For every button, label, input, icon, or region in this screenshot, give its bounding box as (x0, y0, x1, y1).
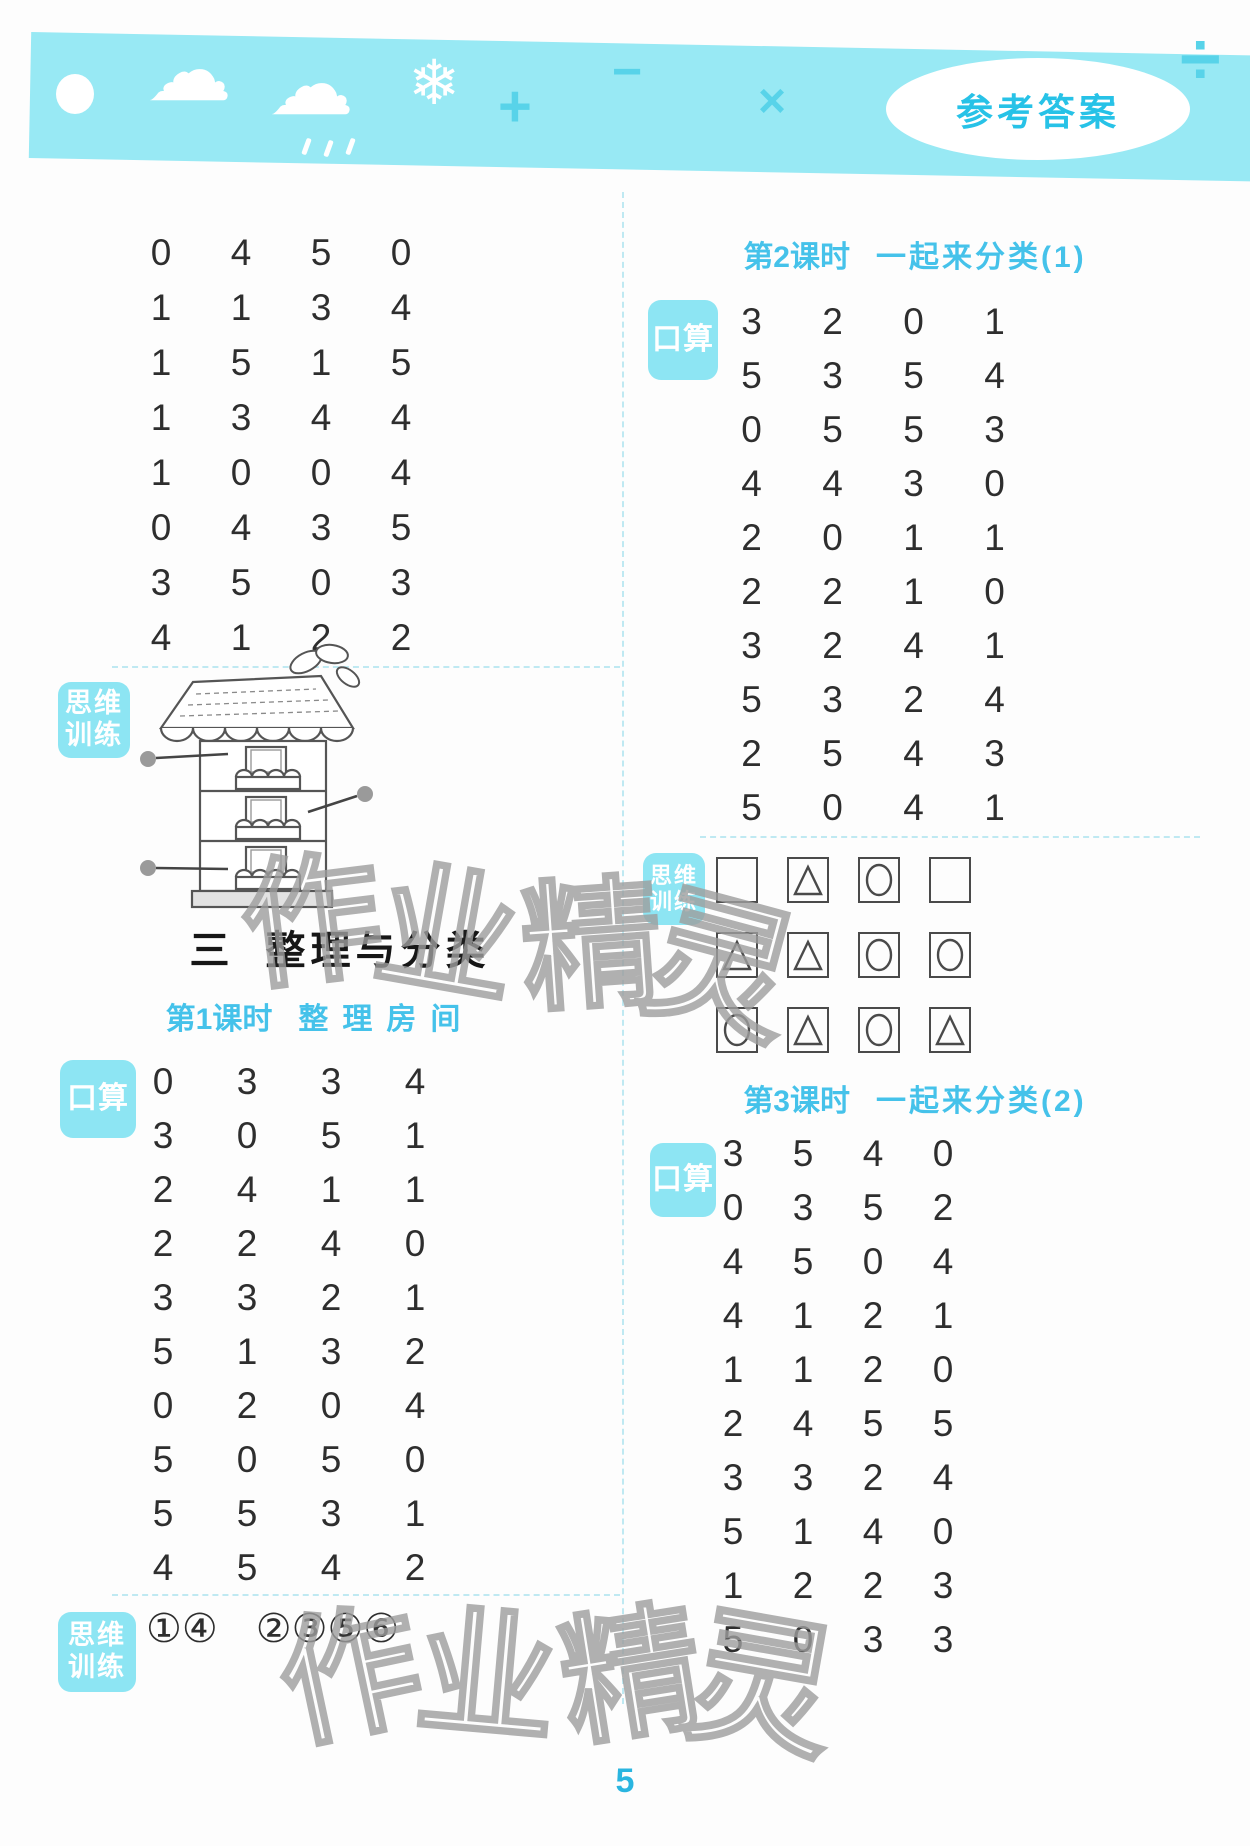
answer-cell: 4 (792, 457, 873, 511)
answer-cell: 4 (361, 445, 441, 500)
stamp-text: 思维 (68, 1620, 126, 1652)
raindrop-icon (345, 138, 356, 156)
oral-calc-stamp: 口算 (648, 300, 718, 380)
answer-cell: 4 (201, 225, 281, 280)
answer-cell: 1 (121, 445, 201, 500)
shape-square-icon (929, 857, 971, 903)
answer-cell: 4 (838, 1127, 908, 1181)
answer-cell: 0 (373, 1433, 457, 1487)
answer-cell: 3 (281, 500, 361, 555)
answer-grid-lesson1: 0334305124112240332151320204505055314542 (121, 1055, 457, 1595)
answer-cell: 0 (838, 1235, 908, 1289)
answer-cell: 4 (281, 390, 361, 445)
answer-cell: 1 (373, 1271, 457, 1325)
answer-cell: 5 (711, 349, 792, 403)
answer-cell: 1 (954, 295, 1035, 349)
answer-row: 1344 (121, 390, 441, 445)
answer-cell: 2 (205, 1217, 289, 1271)
answer-cell: 4 (954, 349, 1035, 403)
answer-cell: 5 (711, 781, 792, 835)
answer-cell: 3 (908, 1613, 978, 1667)
answer-cell: 1 (768, 1343, 838, 1397)
answer-cell: 0 (121, 225, 201, 280)
answer-row: 3324 (698, 1451, 978, 1505)
answer-cell: 2 (838, 1289, 908, 1343)
answer-row: 5324 (711, 673, 1035, 727)
plus-icon: + (498, 78, 532, 136)
answer-cell: 2 (768, 1559, 838, 1613)
answer-cell: 0 (908, 1343, 978, 1397)
answer-cell: 5 (121, 1487, 205, 1541)
answer-cell: 1 (201, 280, 281, 335)
answer-cell: 4 (873, 619, 954, 673)
answer-cell: 0 (281, 445, 361, 500)
cloud-icon: ☁ (146, 28, 232, 114)
answer-cell: 4 (908, 1451, 978, 1505)
answer-cell: 5 (281, 225, 361, 280)
answer-cell: 3 (792, 349, 873, 403)
answer-cell: 4 (873, 781, 954, 835)
stamp-text: 训练 (68, 1652, 126, 1684)
answer-cell: 0 (711, 403, 792, 457)
answer-cell: 3 (792, 673, 873, 727)
answer-row: 5140 (698, 1505, 978, 1559)
answer-cell: 0 (908, 1505, 978, 1559)
header-layer: ☁ ☁ ❄ + − × ÷ 参考答案 (0, 0, 1250, 220)
house-illustration (108, 578, 428, 923)
answer-cell: 4 (838, 1505, 908, 1559)
answer-cell: 2 (373, 1541, 457, 1595)
answer-cell: 5 (908, 1397, 978, 1451)
answer-row: 5033 (698, 1613, 978, 1667)
answer-cell: 4 (289, 1541, 373, 1595)
lesson3-prefix: 第3课时 (743, 1076, 850, 1120)
answer-grid-lesson2: 3201535405534430201122103241532425435041 (711, 295, 1035, 835)
answer-row: 4542 (121, 1541, 457, 1595)
answer-cell: 5 (289, 1433, 373, 1487)
answer-cell: 1 (698, 1559, 768, 1613)
answer-cell: 1 (281, 335, 361, 390)
answer-cell: 1 (289, 1163, 373, 1217)
answer-row: 2411 (121, 1163, 457, 1217)
answer-row: 1223 (698, 1559, 978, 1613)
lesson2-prefix: 第2课时 (743, 232, 850, 276)
answer-cell: 3 (768, 1181, 838, 1235)
answer-cell: 2 (838, 1343, 908, 1397)
shape-circle-icon (858, 932, 900, 978)
answer-row: 4504 (698, 1235, 978, 1289)
answer-cell: 1 (768, 1505, 838, 1559)
shape-circle-icon (929, 932, 971, 978)
answers-badge: 参考答案 (886, 58, 1190, 160)
answer-cell: 3 (121, 1271, 205, 1325)
lesson2-title: 第2课时 一起来分类(1) (680, 232, 1150, 276)
stamp-text: 思维 (650, 863, 698, 889)
section-name: 整理与分类 (266, 918, 491, 976)
shape-circle-icon (858, 1007, 900, 1053)
shape-classification-grid (716, 857, 971, 1053)
answer-cell: 2 (711, 727, 792, 781)
answer-row: 2011 (711, 511, 1035, 565)
answer-cell: 0 (205, 1109, 289, 1163)
answer-row: 3540 (698, 1127, 978, 1181)
answer-row: 3241 (711, 619, 1035, 673)
answer-cell: 5 (121, 1433, 205, 1487)
answer-cell: 3 (711, 295, 792, 349)
answer-row: 5354 (711, 349, 1035, 403)
shape-circle-icon (716, 1007, 758, 1053)
answer-cell: 1 (373, 1109, 457, 1163)
answer-cell: 4 (373, 1055, 457, 1109)
answer-cell: 3 (768, 1451, 838, 1505)
circled-answer-group: ①④ (146, 1606, 218, 1652)
answer-grid-lesson3: 3540035245044121112024553324514012235033 (698, 1127, 978, 1667)
answer-cell: 4 (205, 1163, 289, 1217)
multiply-icon: × (758, 78, 786, 126)
answer-cell: 2 (792, 565, 873, 619)
answer-cell: 2 (373, 1325, 457, 1379)
answer-row: 5041 (711, 781, 1035, 835)
answer-cell: 2 (838, 1559, 908, 1613)
lesson1-title: 第1课时 整理房间 (85, 994, 555, 1038)
answer-cell: 0 (768, 1613, 838, 1667)
answer-cell: 5 (698, 1613, 768, 1667)
answer-row: 5132 (121, 1325, 457, 1379)
shape-triangle-icon (787, 857, 829, 903)
minus-icon: − (612, 46, 642, 98)
answer-cell: 5 (768, 1235, 838, 1289)
lesson2-name: 一起来分类(1) (876, 232, 1087, 276)
answer-cell: 0 (698, 1181, 768, 1235)
answer-cell: 4 (289, 1217, 373, 1271)
shape-triangle-icon (787, 932, 829, 978)
divide-icon: ÷ (1180, 22, 1221, 96)
answer-cell: 5 (792, 727, 873, 781)
lesson1-name: 整理房间 (298, 994, 474, 1038)
rain-cloud-icon: ☁ (268, 42, 354, 128)
answer-row: 0450 (121, 225, 441, 280)
answer-cell: 0 (873, 295, 954, 349)
shape-square-icon (716, 857, 758, 903)
answer-cell: 2 (698, 1397, 768, 1451)
stamp-text: 口算 (652, 322, 714, 357)
answer-cell: 1 (873, 511, 954, 565)
answer-cell: 0 (121, 500, 201, 555)
answer-cell: 4 (361, 280, 441, 335)
answer-cell: 5 (873, 349, 954, 403)
answer-row: 2240 (121, 1217, 457, 1271)
thinking-answer-row: ①④ ②③⑤⑥ (146, 1606, 399, 1652)
lesson1-prefix: 第1课时 (166, 994, 273, 1038)
answer-cell: 5 (873, 403, 954, 457)
shape-triangle-icon (716, 932, 758, 978)
answer-cell: 3 (121, 1109, 205, 1163)
answer-row: 3201 (711, 295, 1035, 349)
answer-cell: 3 (838, 1613, 908, 1667)
answer-cell: 5 (768, 1127, 838, 1181)
answer-cell: 4 (698, 1235, 768, 1289)
answer-cell: 5 (205, 1541, 289, 1595)
answer-cell: 5 (698, 1505, 768, 1559)
answer-cell: 2 (711, 511, 792, 565)
answer-cell: 5 (711, 673, 792, 727)
answer-cell: 3 (205, 1271, 289, 1325)
answer-cell: 5 (289, 1109, 373, 1163)
answer-row: 0435 (121, 500, 441, 555)
raindrop-icon (301, 138, 312, 156)
answer-cell: 3 (908, 1559, 978, 1613)
separator-line (112, 1594, 620, 1596)
answer-cell: 5 (838, 1397, 908, 1451)
answer-row: 1134 (121, 280, 441, 335)
answer-cell: 4 (121, 1541, 205, 1595)
column-divider (622, 192, 624, 1704)
answer-cell: 0 (121, 1379, 205, 1433)
answer-row: 0553 (711, 403, 1035, 457)
page-number: 5 (575, 1762, 675, 1801)
answer-cell: 4 (373, 1379, 457, 1433)
answer-cell: 3 (698, 1451, 768, 1505)
answer-row: 1120 (698, 1343, 978, 1397)
raindrop-icon (323, 140, 334, 158)
stamp-text: 训练 (650, 889, 698, 915)
answer-row: 0352 (698, 1181, 978, 1235)
answer-row: 1515 (121, 335, 441, 390)
section-title: 三 整理与分类 (140, 918, 540, 976)
answer-cell: 4 (873, 727, 954, 781)
answer-cell: 1 (121, 390, 201, 445)
answer-cell: 1 (954, 619, 1035, 673)
answer-row: 3051 (121, 1109, 457, 1163)
answer-cell: 1 (121, 280, 201, 335)
snowflake-icon: ❄ (408, 52, 460, 114)
answer-cell: 3 (954, 727, 1035, 781)
answer-cell: 2 (792, 619, 873, 673)
answer-cell: 0 (792, 511, 873, 565)
answer-cell: 3 (205, 1055, 289, 1109)
shape-triangle-icon (929, 1007, 971, 1053)
answer-cell: 4 (711, 457, 792, 511)
answer-cell: 2 (121, 1217, 205, 1271)
answer-cell: 1 (954, 781, 1035, 835)
answer-cell: 2 (873, 673, 954, 727)
answer-cell: 3 (954, 403, 1035, 457)
answer-cell: 0 (954, 565, 1035, 619)
answer-cell: 0 (361, 225, 441, 280)
answer-cell: 0 (908, 1127, 978, 1181)
lesson3-title: 第3课时 一起来分类(2) (680, 1076, 1150, 1120)
shape-triangle-icon (787, 1007, 829, 1053)
answer-cell: 1 (121, 335, 201, 390)
answer-cell: 1 (768, 1289, 838, 1343)
answer-cell: 0 (121, 1055, 205, 1109)
answer-cell: 4 (201, 500, 281, 555)
answer-cell: 3 (289, 1325, 373, 1379)
answer-cell: 1 (373, 1163, 457, 1217)
answer-cell: 0 (373, 1217, 457, 1271)
answer-row: 3321 (121, 1271, 457, 1325)
answer-cell: 1 (908, 1289, 978, 1343)
answer-cell: 2 (792, 295, 873, 349)
answer-row: 4121 (698, 1289, 978, 1343)
answer-cell: 5 (361, 335, 441, 390)
answer-cell: 5 (121, 1325, 205, 1379)
answer-cell: 0 (201, 445, 281, 500)
lesson3-name: 一起来分类(2) (876, 1076, 1087, 1120)
answer-cell: 2 (289, 1271, 373, 1325)
answer-cell: 4 (698, 1289, 768, 1343)
answers-badge-label: 参考答案 (956, 82, 1120, 136)
answer-cell: 5 (838, 1181, 908, 1235)
answer-cell: 0 (289, 1379, 373, 1433)
thinking-training-stamp: 思维 训练 (643, 853, 705, 925)
answer-cell: 4 (768, 1397, 838, 1451)
stamp-text: 口算 (67, 1081, 129, 1116)
answer-row: 4430 (711, 457, 1035, 511)
answer-row: 5531 (121, 1487, 457, 1541)
answer-cell: 3 (873, 457, 954, 511)
answer-cell: 2 (838, 1451, 908, 1505)
answer-cell: 5 (201, 335, 281, 390)
answer-row: 5050 (121, 1433, 457, 1487)
answer-cell: 2 (121, 1163, 205, 1217)
thinking-training-stamp: 思维 训练 (58, 1612, 136, 1692)
workbook-page: ☁ ☁ ❄ + − × ÷ 参考答案 045011341515134410040… (0, 0, 1250, 1846)
separator-line (700, 836, 1200, 838)
answer-cell: 3 (289, 1487, 373, 1541)
answer-cell: 0 (954, 457, 1035, 511)
answer-cell: 1 (873, 565, 954, 619)
answer-cell: 4 (954, 673, 1035, 727)
answer-cell: 1 (954, 511, 1035, 565)
answer-cell: 1 (205, 1325, 289, 1379)
answer-cell: 1 (373, 1487, 457, 1541)
answer-cell: 3 (289, 1055, 373, 1109)
answer-row: 0204 (121, 1379, 457, 1433)
answer-row: 0334 (121, 1055, 457, 1109)
answer-cell: 3 (281, 280, 361, 335)
answer-cell: 2 (711, 565, 792, 619)
answer-row: 2543 (711, 727, 1035, 781)
watermark-char: 精 (545, 1554, 715, 1775)
shape-circle-icon (858, 857, 900, 903)
answer-cell: 5 (361, 500, 441, 555)
answer-cell: 5 (792, 403, 873, 457)
circled-answer-group: ②③⑤⑥ (256, 1606, 399, 1652)
sun-icon (56, 74, 94, 114)
section-number: 三 (190, 918, 230, 976)
answer-row: 1004 (121, 445, 441, 500)
answer-row: 2210 (711, 565, 1035, 619)
answer-cell: 1 (698, 1343, 768, 1397)
answer-cell: 0 (792, 781, 873, 835)
answer-cell: 2 (205, 1379, 289, 1433)
answer-cell: 4 (361, 390, 441, 445)
answer-cell: 5 (205, 1487, 289, 1541)
answer-cell: 3 (201, 390, 281, 445)
answer-cell: 3 (698, 1127, 768, 1181)
answer-row: 2455 (698, 1397, 978, 1451)
answer-cell: 2 (908, 1181, 978, 1235)
answer-cell: 3 (711, 619, 792, 673)
answer-cell: 0 (205, 1433, 289, 1487)
answer-cell: 4 (908, 1235, 978, 1289)
